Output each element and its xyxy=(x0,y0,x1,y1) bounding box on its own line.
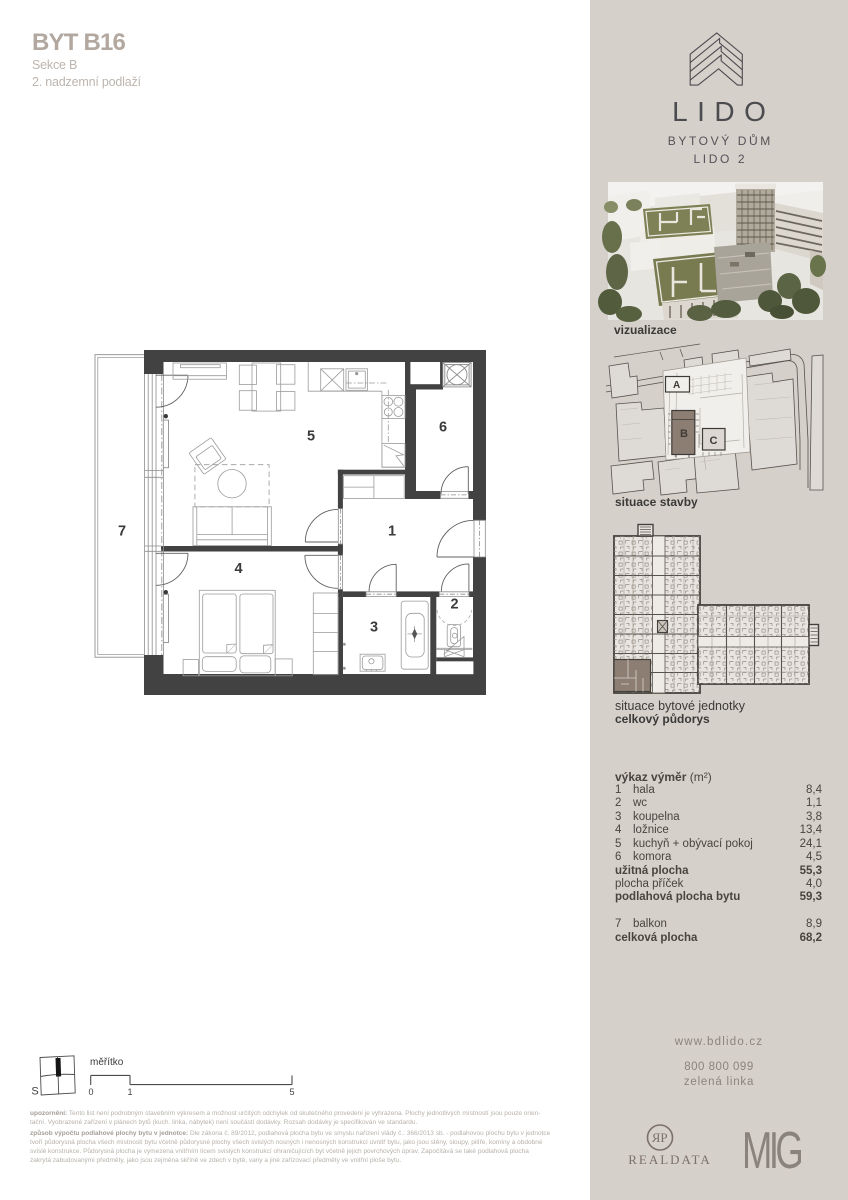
svg-text:B: B xyxy=(680,428,688,440)
svg-text:1: 1 xyxy=(388,524,396,540)
svg-text:2: 2 xyxy=(450,597,458,613)
svg-text:S: S xyxy=(31,1086,38,1098)
svg-text:6: 6 xyxy=(439,420,447,436)
svg-text:0: 0 xyxy=(88,1087,93,1097)
svg-text:1: 1 xyxy=(127,1087,132,1097)
svg-text:4: 4 xyxy=(235,561,243,577)
svg-text:A: A xyxy=(673,380,680,391)
svg-text:5: 5 xyxy=(307,429,315,445)
svg-text:7: 7 xyxy=(118,524,126,540)
svg-text:P: P xyxy=(660,1130,667,1145)
svg-text:3: 3 xyxy=(370,620,378,636)
svg-text:C: C xyxy=(710,435,718,447)
svg-text:5: 5 xyxy=(289,1087,294,1097)
svg-text:R: R xyxy=(651,1130,660,1145)
